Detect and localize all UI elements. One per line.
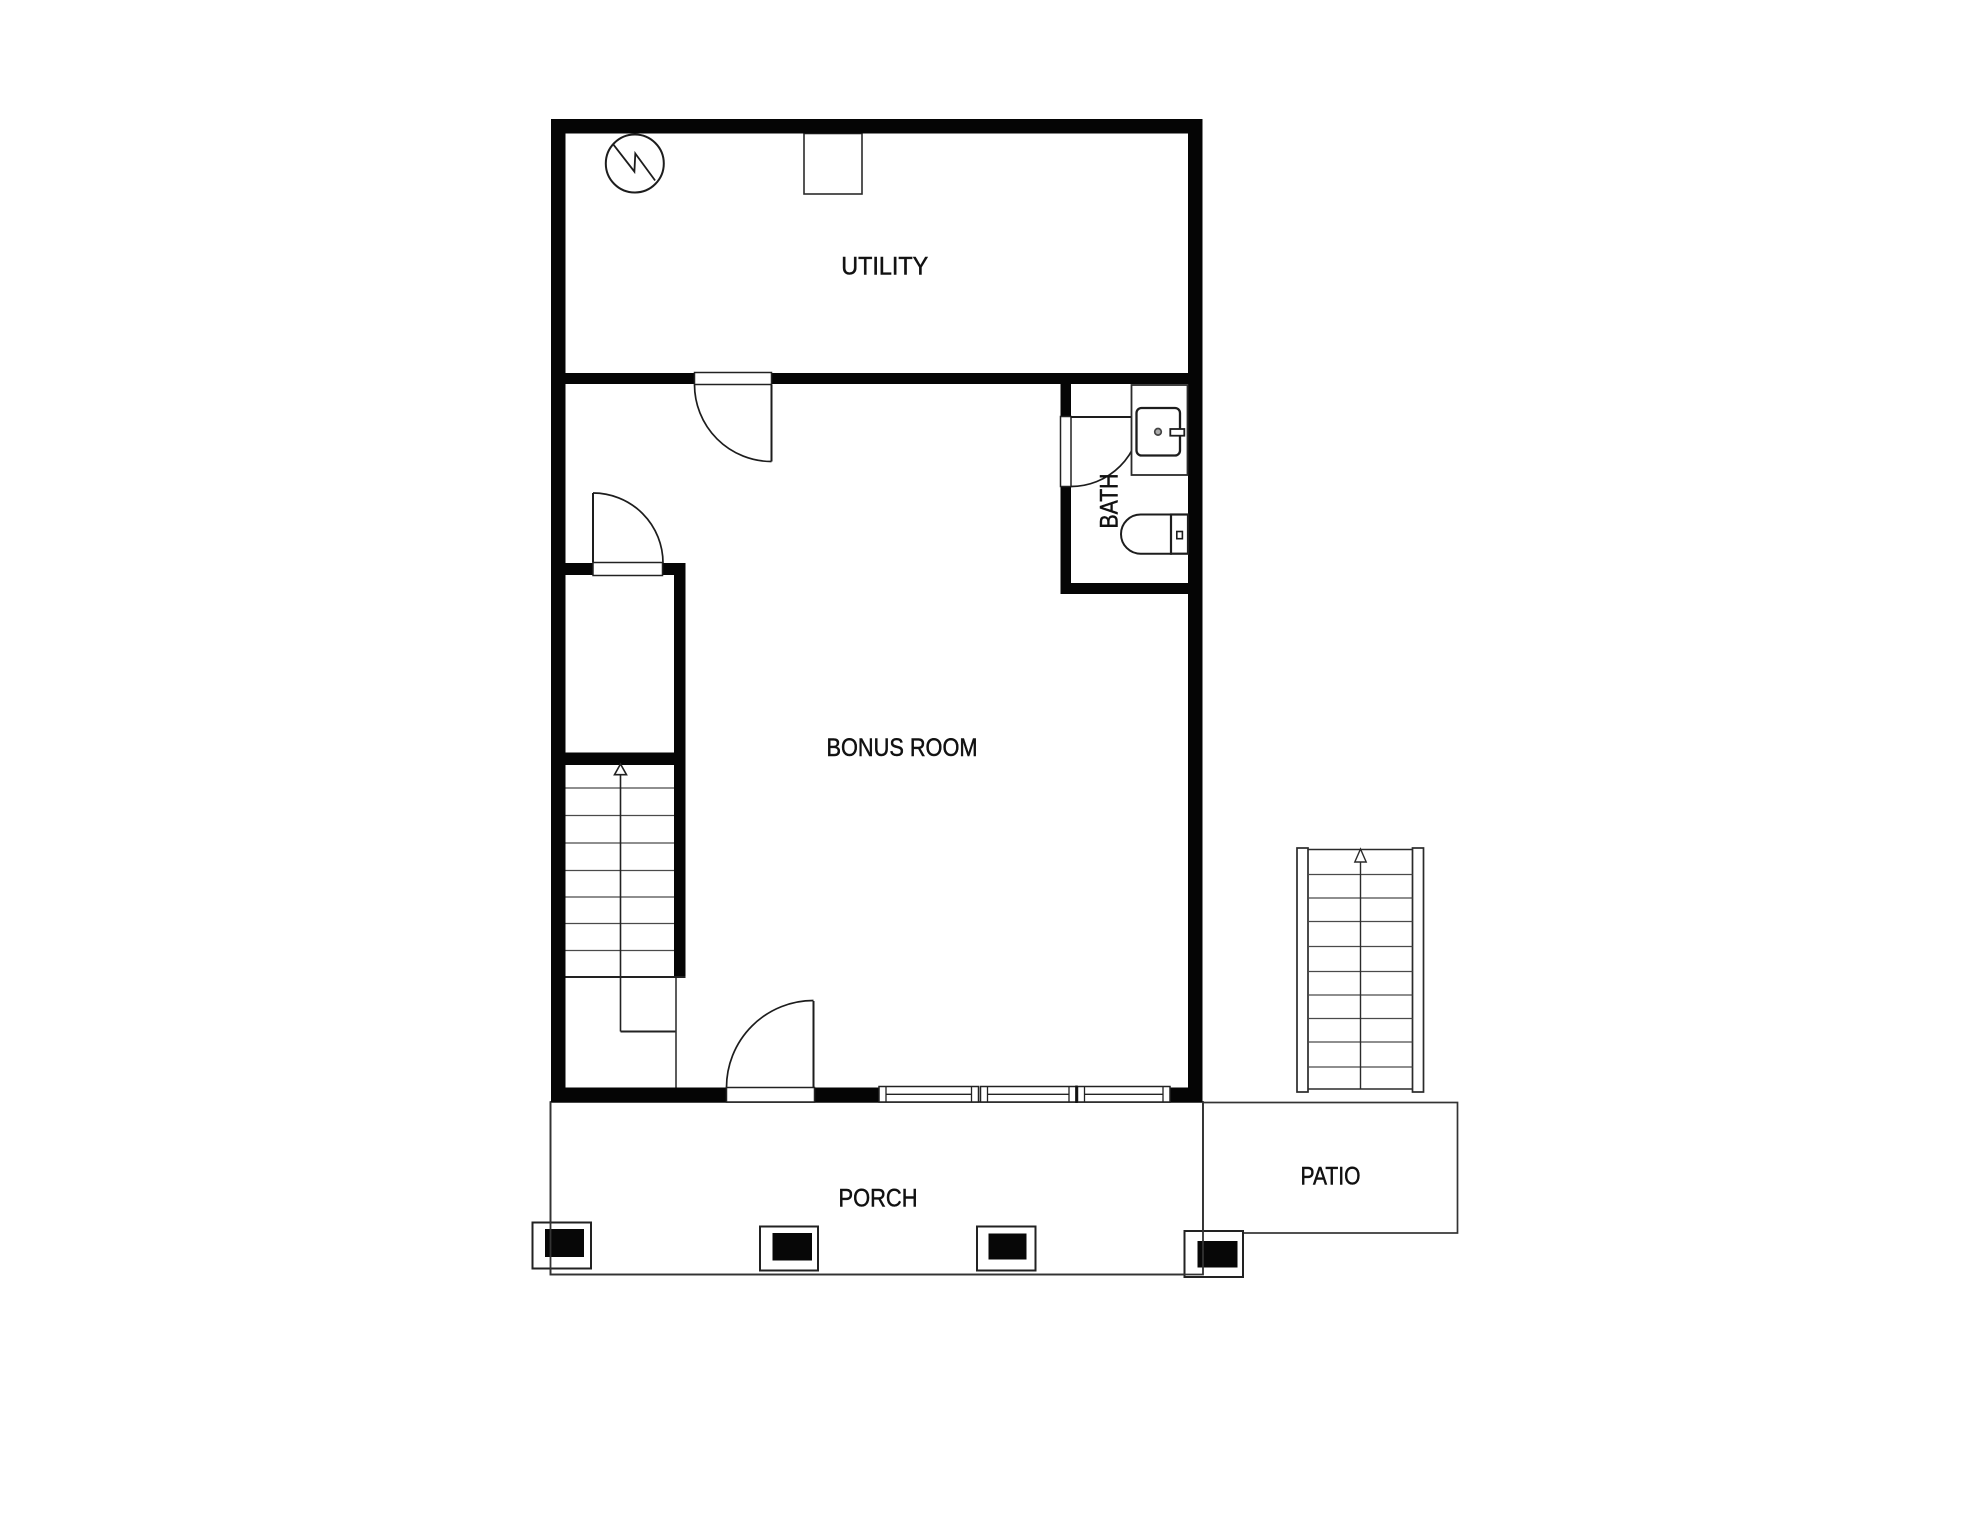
svg-text:BONUS ROOM: BONUS ROOM — [827, 734, 978, 762]
svg-text:PATIO: PATIO — [1301, 1163, 1361, 1191]
svg-text:BATH: BATH — [1096, 474, 1124, 529]
svg-text:PORCH: PORCH — [839, 1185, 918, 1213]
svg-text:UTILITY: UTILITY — [841, 253, 928, 281]
